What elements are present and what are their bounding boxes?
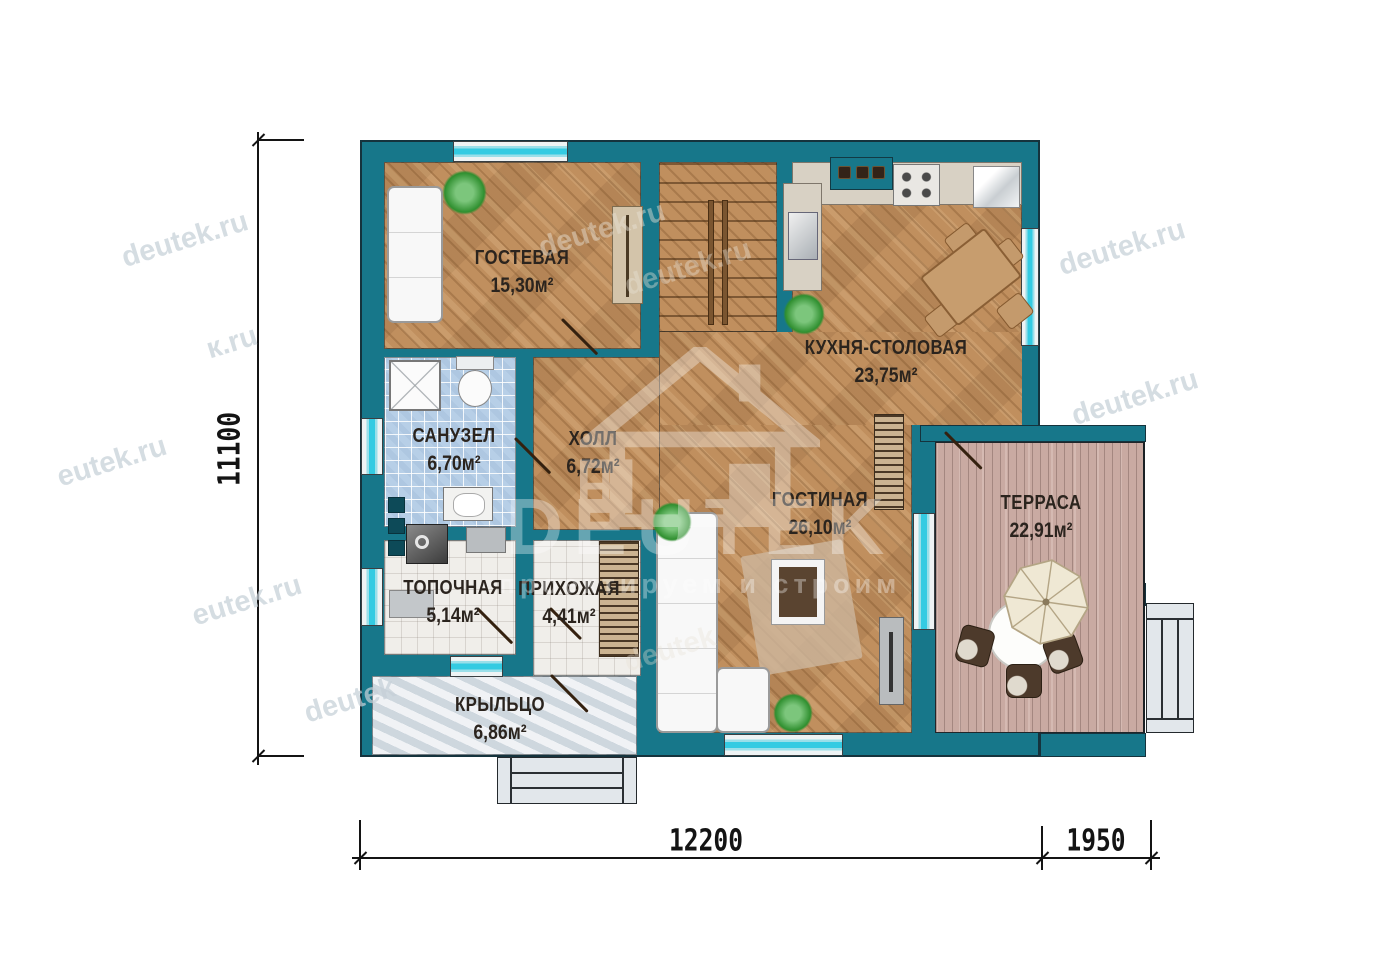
fridge	[973, 166, 1020, 208]
watermark: deutek.ru	[118, 205, 252, 275]
room-name: ТЕРРАСА	[1001, 490, 1082, 517]
dimension-extension	[258, 139, 304, 141]
porch-step-stringer	[510, 757, 512, 804]
dimension-witness	[1150, 820, 1152, 870]
logo-title: DEUTEK	[470, 487, 930, 567]
watermark: deutek.ru	[1055, 213, 1189, 283]
window	[724, 734, 843, 756]
porch-steps	[497, 757, 637, 804]
stove	[893, 164, 940, 206]
boiler	[406, 524, 448, 564]
room-area: 22,91м²	[1001, 517, 1082, 544]
plant-icon	[773, 693, 813, 733]
chimney-flue	[388, 497, 405, 513]
porch-step-line	[510, 772, 624, 774]
logo-watermark: DEUTEK проектируем и строим	[470, 347, 930, 627]
corner-sofa-section	[716, 667, 770, 733]
room-label-terrace: ТЕРРАСА 22,91м²	[1001, 490, 1082, 544]
window	[450, 656, 503, 677]
tv-cabinet	[879, 617, 904, 705]
porch-step-line	[510, 787, 624, 789]
side-step-divider	[1177, 618, 1179, 718]
watermark: deutek.ru	[1068, 363, 1202, 433]
watermark: eutek.ru	[188, 569, 306, 634]
plant-icon	[442, 170, 487, 215]
dimension-witness	[1041, 826, 1043, 870]
porch-step-stringer	[622, 757, 624, 804]
kitchen-sink	[788, 212, 818, 260]
logo-subtitle: проектируем и строим	[470, 569, 930, 600]
control-knob	[856, 166, 869, 179]
window	[1021, 228, 1039, 346]
terrace-chair	[1006, 664, 1042, 698]
watermark: к.ru	[203, 320, 262, 367]
terrace-bottom-wall	[1040, 733, 1146, 757]
side-step-divider	[1161, 618, 1163, 718]
umbrella-icon	[994, 552, 1097, 652]
shower	[389, 360, 441, 411]
room-label-porch: КРЫЛЬЦО 6,86м²	[455, 692, 545, 746]
terrace-side-steps	[1146, 603, 1194, 733]
room-name: КРЫЛЬЦО	[455, 692, 545, 719]
boiler-burner	[415, 535, 429, 549]
chimney-flue	[388, 518, 405, 534]
dimension-line-vertical	[257, 132, 259, 765]
side-step-line	[1146, 718, 1194, 720]
window	[453, 141, 568, 162]
room-area: 6,86м²	[455, 719, 545, 746]
chimney-flue	[388, 540, 405, 556]
tv-screen	[889, 632, 893, 692]
dimension-value-width-main: 12200	[669, 824, 743, 859]
control-knob	[838, 166, 851, 179]
side-step-line	[1146, 618, 1194, 620]
plant-icon	[783, 293, 825, 335]
control-knob	[872, 166, 885, 179]
watermark: eutek.ru	[53, 430, 171, 495]
window	[361, 418, 383, 475]
sofa	[387, 186, 443, 323]
dimension-value-height: 11100	[213, 412, 248, 486]
dimension-value-width-terrace: 1950	[1066, 824, 1125, 859]
room-area: 15,30м²	[475, 272, 569, 299]
floor-plan-canvas: ГОСТЕВАЯ 15,30м² КУХНЯ-СТОЛОВАЯ 23,75м² …	[0, 0, 1400, 975]
window	[361, 568, 383, 626]
dimension-extension	[258, 755, 304, 757]
dimension-witness	[359, 820, 361, 870]
